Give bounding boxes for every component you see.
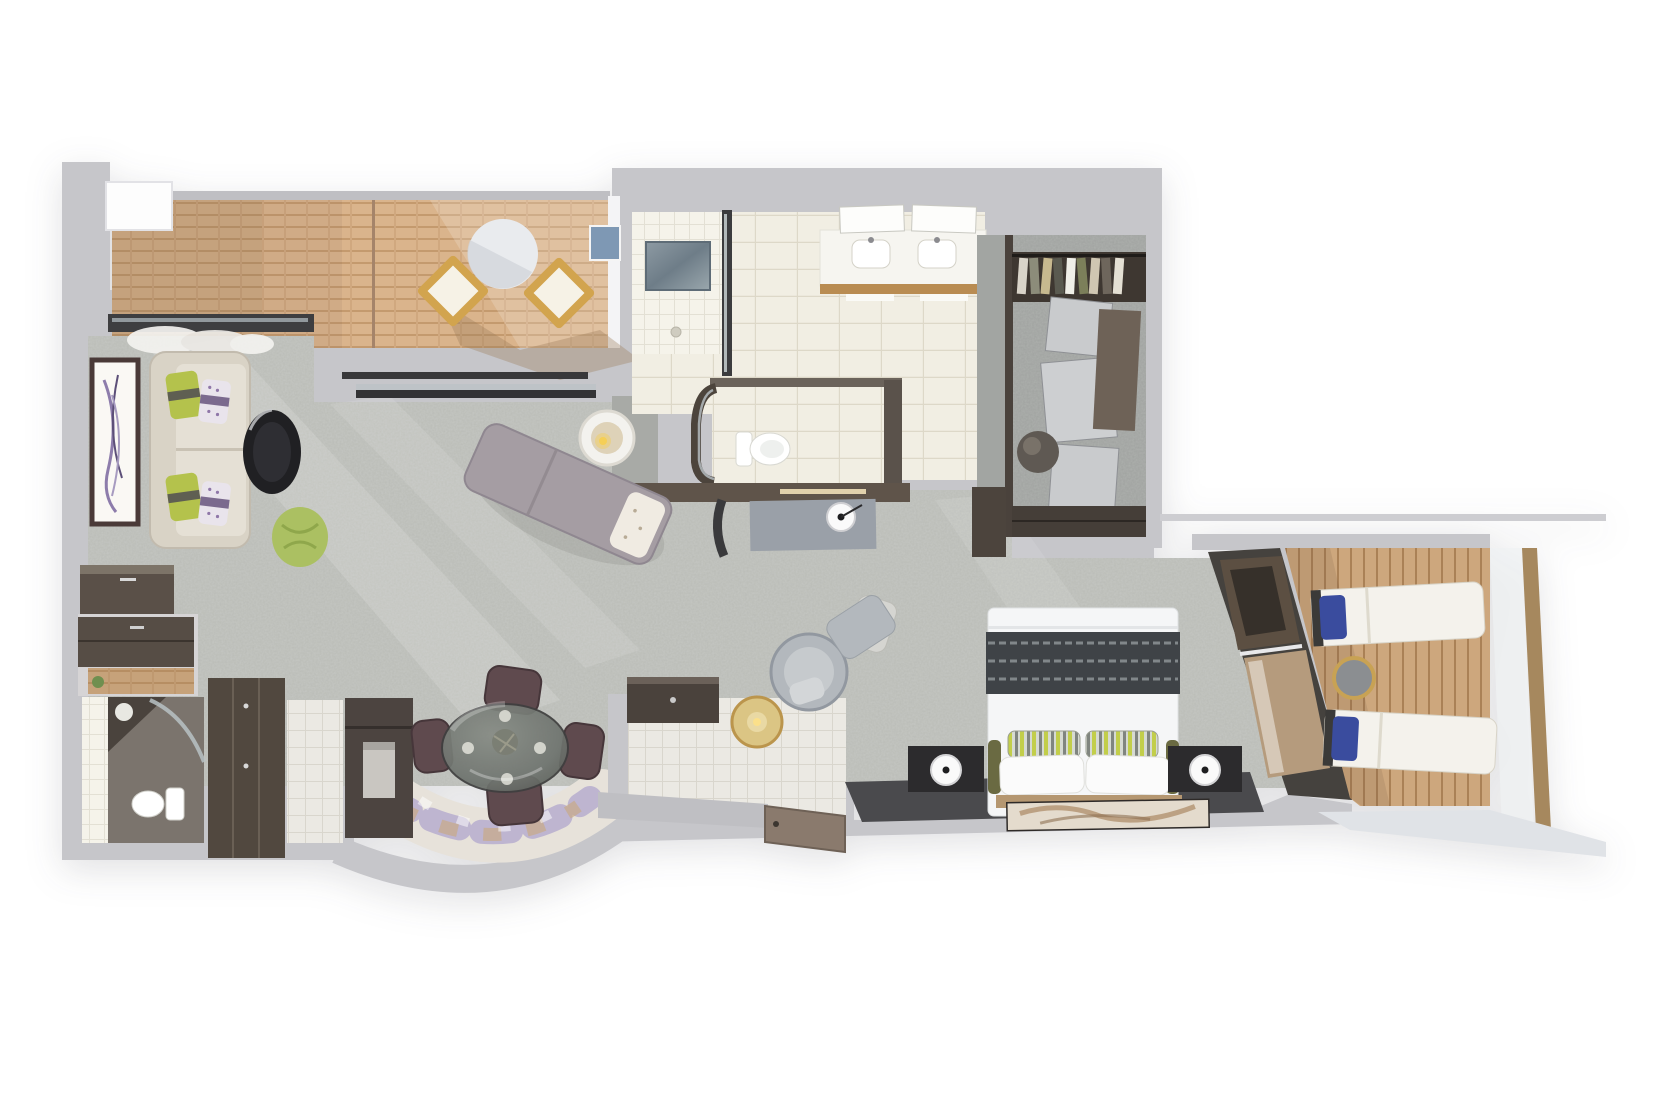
nightstand-right: [1168, 746, 1242, 792]
front-balcony-railing: [112, 191, 610, 200]
closet-dresser-seam: [1012, 520, 1146, 522]
green-pouf: [272, 507, 328, 567]
shower-marble-bench: [646, 242, 710, 290]
foyer-console: [627, 677, 719, 723]
vanity-counter: [820, 230, 986, 286]
floor-plan-rendering: [0, 0, 1680, 1120]
sofa-pillow-pattern-top: [198, 378, 232, 424]
lower-deck-ledge: [1318, 810, 1606, 857]
candle-side-table: [580, 411, 634, 465]
bed-pillow-left: [999, 755, 1084, 796]
bed-pillow-right: [1085, 755, 1170, 796]
closet-wardrobe-clothes: [1012, 252, 1146, 302]
living-window-strip: [108, 314, 314, 332]
floor-plan-page: [0, 0, 1680, 1120]
coffee-table: [243, 410, 301, 494]
corridor-led-light: [780, 489, 866, 494]
guest-toilet: [82, 697, 204, 843]
railing-line-upper: [1160, 514, 1606, 521]
dining-table: [442, 704, 568, 792]
guest-sink: [115, 703, 133, 721]
wall-top-left-column: [62, 162, 110, 296]
living-window-shine: [112, 318, 308, 322]
art-rug: [1007, 799, 1209, 831]
water-closet: [696, 378, 902, 484]
wall-side-balcony-top: [1192, 534, 1490, 550]
white-roof-wedge: [106, 182, 172, 230]
wc-wall-right: [884, 380, 902, 484]
shower-glass-shine: [724, 214, 727, 372]
bathroom-art-blue: [590, 226, 620, 260]
closet-pouf-highlight: [1023, 437, 1041, 455]
balcony-door: [342, 372, 596, 398]
sofa-pillow-green-top: [165, 370, 203, 420]
bed-bolster-left: [988, 740, 1001, 794]
gold-candle-table: [732, 697, 782, 747]
deck-plank-seam: [372, 200, 375, 348]
double-vanity: [820, 205, 986, 301]
vanity-towel-2: [920, 294, 968, 301]
foyer-left-wall: [608, 694, 628, 800]
sofa-pillow-green-bottom: [165, 472, 203, 522]
shower: [632, 210, 732, 376]
sun-lounger-2: [1323, 710, 1498, 775]
sofa: [150, 352, 250, 548]
vanity-wood-shelf: [820, 284, 986, 294]
dining-wall-cabinet: [345, 698, 413, 838]
closet-door-frame: [1005, 235, 1013, 537]
deck-end-sliver: [608, 196, 620, 348]
vanity-towel: [846, 294, 894, 301]
shower-drain: [671, 327, 681, 337]
entry-closet: [208, 678, 343, 858]
bed-accent-pillow-left: [1008, 731, 1080, 758]
desk-nook: [78, 614, 198, 696]
closet-marble-strip: [977, 235, 1007, 490]
desk-plant: [92, 676, 104, 688]
sofa-pillow-pattern-bottom: [198, 480, 232, 526]
bed-accent-pillow-right: [1086, 731, 1158, 758]
nightstand-left: [908, 746, 984, 792]
wall-artwork: [92, 360, 138, 524]
balcony-side-table: [1334, 658, 1374, 698]
bed: [986, 608, 1182, 816]
wc-wall-top: [710, 378, 902, 387]
toilet: [736, 432, 790, 466]
bedroom-closet-doorway-piece: [972, 487, 1006, 557]
sun-lounger-1: [1311, 582, 1486, 647]
